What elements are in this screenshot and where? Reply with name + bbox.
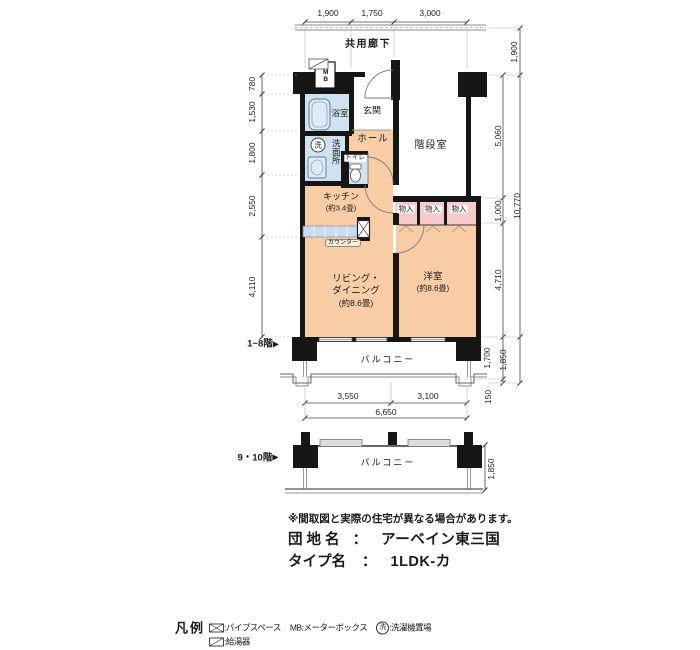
floorplan-drawing [0, 0, 700, 650]
estate-name-label: 団 地 名 [288, 533, 340, 548]
type-name-separator: ： [362, 555, 377, 570]
floors-high-label: 9・10階▶ [237, 453, 278, 463]
windows [319, 338, 445, 342]
floorplan-canvas: 1,900 1,750 3,000 共用廊下 1,900 MB 玄関 浴室 ホー… [0, 0, 700, 650]
dim-top-1750: 1,750 [361, 9, 382, 18]
corridor-line [295, 25, 486, 30]
dim-left-1530: 1,530 [248, 101, 257, 122]
dim-right-1700: 1,700 [483, 347, 492, 368]
dim-right-outer-1850: 1,850 [499, 349, 508, 370]
legend-washer-mark: 洗 [379, 625, 386, 632]
floors-low-label: 1~8階▶ [247, 339, 279, 349]
room-fills [303, 94, 477, 338]
room-label-bath: 浴室 [331, 109, 348, 118]
dim-bottom-3550: 3,550 [337, 392, 358, 401]
room-label-hall: ホール [357, 134, 389, 144]
floors-high-text: 9・10階 [237, 453, 272, 463]
legend-heater-label: :給湯器 [224, 638, 250, 647]
type-name-row: タイプ名 ： 1LDK-カ [288, 555, 451, 570]
room-size-kitchen: (約3.4畳) [326, 204, 356, 212]
dim-right-4710: 4,710 [494, 269, 503, 290]
closet-label-2: 物入 [424, 205, 441, 213]
room-size-living: (約8.6畳) [339, 298, 373, 307]
dim-bottom-3100: 3,100 [417, 392, 438, 401]
legend-pipe-space-label: :パイプスペース [224, 624, 281, 633]
room-label-genkan: 玄関 [363, 107, 381, 116]
type-name-value: 1LDK-カ [391, 555, 451, 570]
room-size-bedroom: (約8.6畳) [417, 285, 449, 293]
disclaimer-note: ※間取図と実際の住宅が異なる場合があります。 [288, 514, 518, 525]
legend-mb-label: MB:メーターボックス [290, 624, 367, 633]
dim-bottom-6650: 6,650 [375, 407, 396, 416]
legend-washer-icon: 洗 [376, 622, 389, 635]
room-label-toilet: トイレ [344, 155, 366, 162]
room-label-kitchen: キッチン [323, 193, 359, 202]
balcony-label-low: バルコニー [361, 356, 416, 365]
washer-place-mark: 洗 [314, 140, 322, 151]
floors-low-arrow-icon: ▶ [273, 340, 279, 348]
dim-top-3000: 3,000 [419, 9, 440, 18]
dim-left-4110: 4,110 [248, 277, 257, 298]
legend-row-2: :給湯器 [209, 638, 250, 647]
estate-name-separator: ： [353, 533, 368, 548]
dim-right-outer-1900: 1,900 [510, 41, 519, 62]
floors-high-arrow-icon: ▶ [272, 454, 278, 462]
dim-top-1900: 1,900 [317, 9, 338, 18]
room-label-washroom: 洗面所 [332, 139, 341, 165]
dim-right-1000: 1,000 [494, 200, 503, 221]
counter-label: カウンター [325, 239, 361, 247]
dim-left-1800: 1,800 [248, 142, 257, 163]
room-label-stairs: 階段室 [415, 141, 448, 151]
closet-label-3: 物入 [451, 205, 468, 213]
corridor-label: 共用廊下 [345, 40, 391, 50]
balcony-1-8 [280, 361, 487, 386]
dim-left-780: 780 [248, 77, 257, 91]
meter-box-label: MB [322, 69, 329, 83]
floors-low-text: 1~8階 [247, 339, 273, 349]
water-heater-icon [209, 638, 224, 647]
dim-balcony-high-1850: 1,850 [487, 458, 496, 479]
legend-row-1: :パイプスペース MB:メーターボックス 洗 :洗濯機置場 [209, 622, 431, 635]
estate-name-row: 団 地 名 ： アーベイン東三国 [288, 533, 500, 548]
legend-title: 凡例 [175, 622, 205, 635]
balcony-label-high: バルコニー [361, 459, 416, 468]
room-label-living-1: リビング・ [332, 274, 380, 284]
room-label-living-2: ダイニング [332, 286, 380, 296]
type-name-label: タイプ名 [288, 555, 346, 570]
dim-right-150: 150 [484, 390, 493, 404]
estate-name-value: アーベイン東三国 [381, 533, 500, 548]
legend-washer-label: :洗濯機置場 [389, 624, 431, 633]
washer-place-icon: 洗 [311, 138, 326, 153]
closet-label-1: 物入 [398, 205, 415, 213]
pipe-space-icon [209, 624, 224, 633]
dim-right-outer-10770: 10,770 [513, 193, 522, 219]
dim-left-2550: 2,550 [248, 195, 257, 216]
dim-right-5060: 5,060 [494, 125, 503, 146]
room-label-bedroom: 洋室 [423, 272, 442, 282]
